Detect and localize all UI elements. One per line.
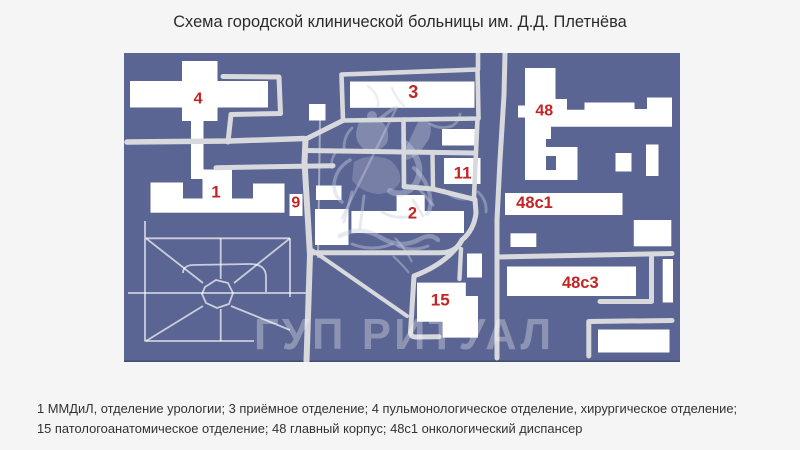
svg-text:1: 1 bbox=[211, 183, 220, 202]
svg-text:48: 48 bbox=[535, 103, 553, 120]
svg-text:48с3: 48с3 bbox=[562, 274, 599, 292]
svg-text:48с1: 48с1 bbox=[516, 194, 553, 212]
svg-text:4: 4 bbox=[194, 90, 203, 107]
svg-text:15: 15 bbox=[431, 291, 450, 310]
svg-text:2: 2 bbox=[408, 204, 417, 222]
svg-text:11: 11 bbox=[454, 164, 472, 183]
svg-text:3: 3 bbox=[408, 82, 418, 102]
svg-text:ГУП РИТУАЛ: ГУП РИТУАЛ bbox=[254, 311, 554, 359]
svg-text:9: 9 bbox=[291, 195, 300, 212]
